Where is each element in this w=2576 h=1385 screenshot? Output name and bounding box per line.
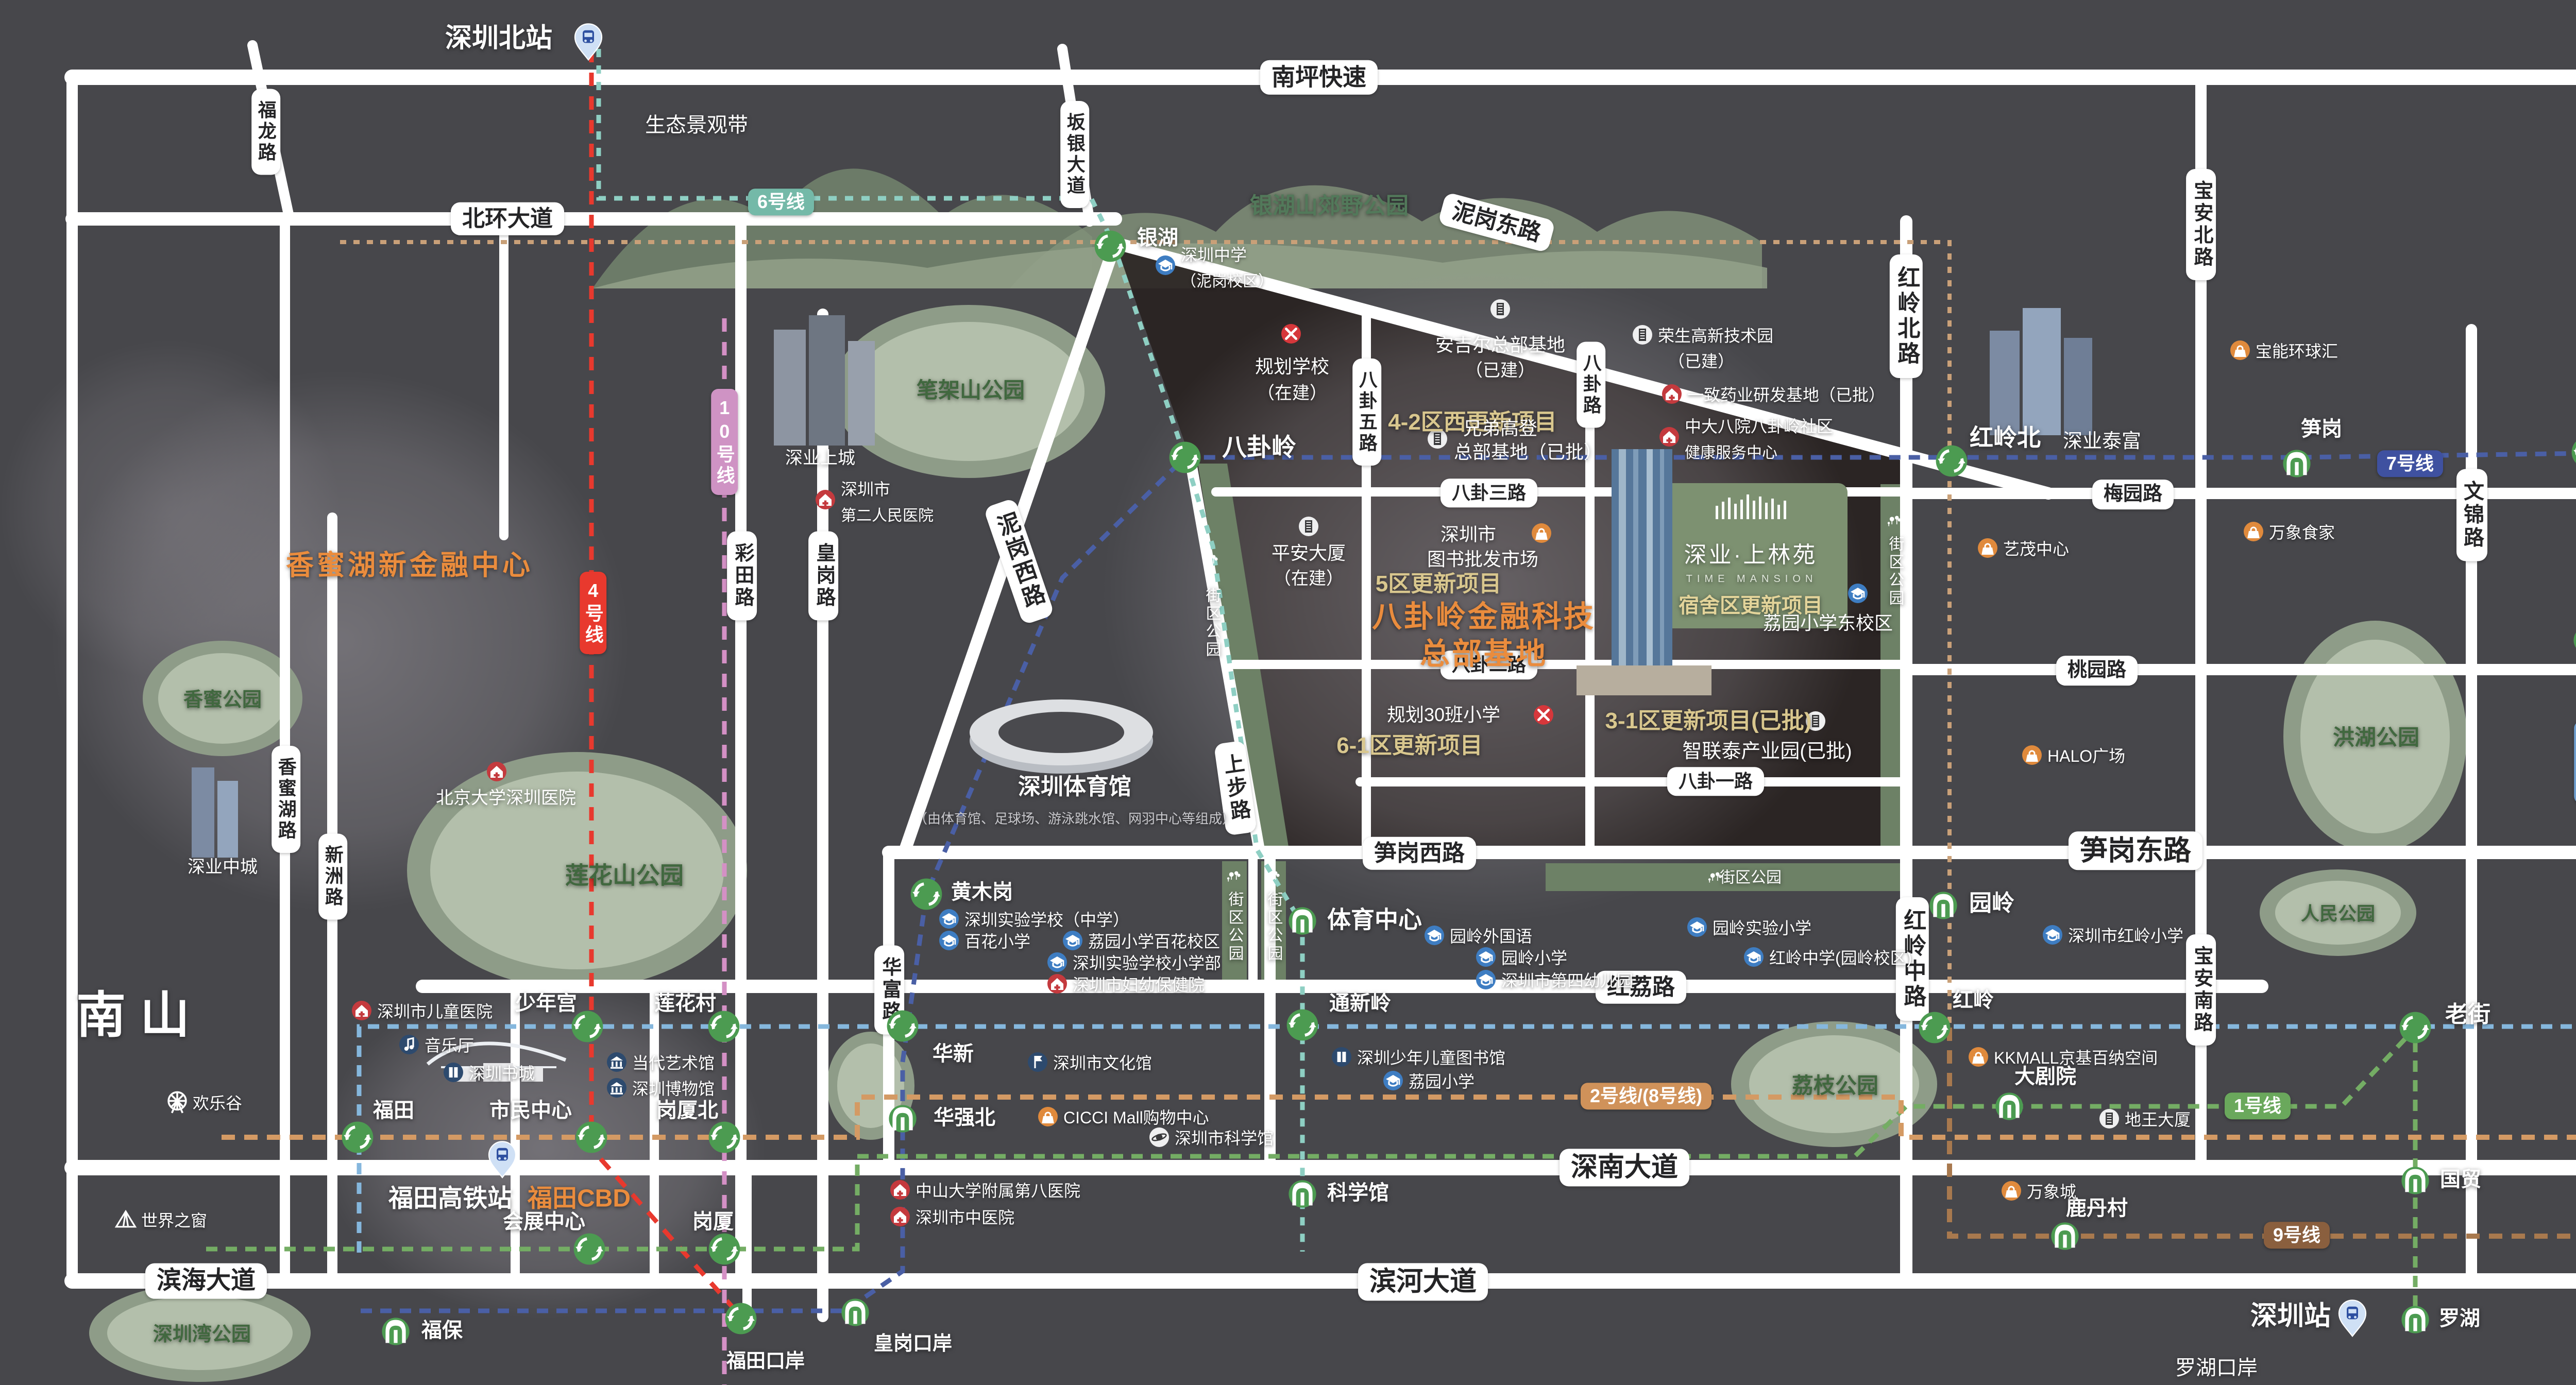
road-label-南坪快速: 南坪快速 <box>1260 60 1378 95</box>
poi-label-万象食家: 万象食家 <box>2269 520 2335 543</box>
poi-label-荣生高新技术园: 荣生高新技术园 <box>1658 323 1773 347</box>
poi-label-KKMALL京基百纳空间: KKMALL京基百纳空间 <box>1994 1045 2158 1069</box>
station-icon-pin <box>483 1141 521 1179</box>
text-深业泰富: 深业泰富 <box>2063 431 2141 453</box>
road-label-皇岗路: 皇岗路 <box>808 532 838 621</box>
text-生态景观带: 生态景观带 <box>645 114 748 136</box>
station-icon-福田口岸 <box>724 1302 757 1335</box>
station-icon-莲花村 <box>707 1010 740 1043</box>
poi-icon-hospital-中大八院八卦岭社区 <box>1659 426 1680 447</box>
map-label-layer: 南坪快速北环大道泥岗东路泥岗西路上步路笋岗西路笋岗东路红荔路深南大道滨河大道滨海… <box>0 0 2576 1385</box>
poi-icon-pyramid-世界之窗 <box>114 1208 138 1232</box>
station-label-罗湖: 罗湖 <box>2439 1307 2480 1330</box>
station-icon-福保 <box>381 1317 410 1346</box>
poi-icon-shop-CICCI Mall购物中心 <box>1038 1106 1058 1127</box>
road-label-泥岗东路: 泥岗东路 <box>1437 192 1555 253</box>
poi-label-第二人民医院: 第二人民医院 <box>841 503 934 525</box>
poi-label-中大八院八卦岭社区: 中大八院八卦岭社区 <box>1685 414 1833 437</box>
text-北京大学深圳医院: 北京大学深圳医院 <box>436 789 576 808</box>
poi-icon-construction <box>1281 323 1301 344</box>
poi-label-世界之窗: 世界之窗 <box>141 1208 207 1232</box>
poi-label-园岭实验小学: 园岭实验小学 <box>1713 915 1811 939</box>
poi-label-深圳市第四幼儿园: 深圳市第四幼儿园 <box>1501 968 1633 991</box>
text-街区公园: 街区公园 <box>1720 869 1782 886</box>
station-label-福保: 福保 <box>421 1319 463 1342</box>
station-icon-少年宫 <box>571 1010 604 1043</box>
station-icon-岗厦北 <box>708 1121 741 1154</box>
station-label-八卦岭: 八卦岭 <box>1222 435 1296 462</box>
station-label-福田口岸: 福田口岸 <box>726 1351 805 1373</box>
station-icon-国贸 <box>2401 1166 2430 1195</box>
station-icon-体育中心 <box>1288 907 1317 935</box>
text-总部基地: 总部基地 <box>1420 638 1548 671</box>
poi-icon-school-园岭外国语 <box>1424 925 1445 946</box>
station-icon-红岭北 <box>1935 444 1968 477</box>
road-label-泥岗西路: 泥岗西路 <box>983 498 1055 625</box>
poi-label-（泥岗校区）: （泥岗校区） <box>1181 268 1274 291</box>
text-街区公园: 街区公园 <box>1265 891 1282 963</box>
text-规划学校: 规划学校 <box>1255 356 1329 377</box>
station-label-红岭北: 红岭北 <box>1970 425 2041 451</box>
text-兄弟高登: 兄弟高登 <box>1463 418 1537 439</box>
road-label-笋岗东路: 笋岗东路 <box>2069 831 2202 870</box>
station-label-市民中心: 市民中心 <box>489 1099 572 1122</box>
road-label-坂银大道: 坂银大道 <box>1060 101 1089 208</box>
road-label-滨海大道: 滨海大道 <box>145 1263 267 1299</box>
poi-label-深圳书城: 深圳书城 <box>469 1061 535 1084</box>
station-icon-华强北 <box>888 1104 917 1133</box>
road-label-梅园路: 梅园路 <box>2092 480 2174 509</box>
poi-icon-school-深圳实验学校（中学） <box>939 909 959 929</box>
text-人民公园: 人民公园 <box>2301 903 2375 924</box>
road-label-彩田路: 彩田路 <box>727 532 757 621</box>
station-icon-八卦岭 <box>1168 441 1201 474</box>
poi-icon-shop-万象食家 <box>2243 521 2264 542</box>
station-label-红岭: 红岭 <box>1953 989 1994 1012</box>
poi-label-一致药业研发基地（已批）: 一致药业研发基地（已批） <box>1687 382 1885 406</box>
road-label-八卦路: 八卦路 <box>1577 342 1605 428</box>
road-label-红岭北路: 红岭北路 <box>1890 254 1923 378</box>
poi-icon-museum-深圳博物馆 <box>606 1078 627 1098</box>
poi-label-荔园小学: 荔园小学 <box>1409 1069 1475 1092</box>
station-icon-深圳北站 <box>569 23 607 61</box>
station-label-银湖: 银湖 <box>1137 227 1178 249</box>
metro-badge-1号线: 1号线 <box>2225 1092 2291 1119</box>
text-深业上城: 深业上城 <box>785 449 855 468</box>
poi-icon-science-深圳市科学馆 <box>1149 1127 1170 1148</box>
station-label-科学馆: 科学馆 <box>1327 1182 1389 1204</box>
text-香蜜公园: 香蜜公园 <box>183 690 262 711</box>
station-label-国贸: 国贸 <box>2440 1168 2481 1191</box>
text-深圳湾公园: 深圳湾公园 <box>153 1324 251 1346</box>
station-icon-深圳站 <box>2333 1299 2371 1338</box>
poi-icon-shop <box>1531 523 1552 543</box>
poi-icon-hospital-中山大学附属第八医院 <box>890 1179 910 1200</box>
text-深业·上林苑: 深业·上林苑 <box>1684 543 1818 568</box>
poi-icon-hospital-深圳市妇幼保健院 <box>1047 973 1067 994</box>
text-八卦岭金融科技: 八卦岭金融科技 <box>1372 601 1596 634</box>
poi-icon-shop-KKMALL京基百纳空间 <box>1968 1047 1989 1067</box>
metro-badge-6号线: 6号线 <box>748 189 814 215</box>
poi-label-深圳实验学校（中学）: 深圳实验学校（中学） <box>964 907 1129 931</box>
text-深圳市: 深圳市 <box>1440 524 1496 545</box>
poi-icon-building <box>1490 299 1511 319</box>
poi-label-地王大厦: 地王大厦 <box>2125 1107 2191 1131</box>
road-label-宝安北路: 宝安北路 <box>2186 169 2216 280</box>
road-label-笋岗西路: 笋岗西路 <box>1363 837 1476 870</box>
poi-icon-shop-宝能环球汇 <box>2230 340 2250 361</box>
text-荔枝公园: 荔枝公园 <box>1792 1074 1878 1098</box>
poi-icon-school-深圳实验学校小学部 <box>1047 952 1067 972</box>
poi-label-深圳实验学校小学部: 深圳实验学校小学部 <box>1073 950 1221 974</box>
station-label-深圳站: 深圳站 <box>2250 1302 2331 1331</box>
road-label-深南大道: 深南大道 <box>1560 1149 1689 1186</box>
poi-label-园岭小学: 园岭小学 <box>1501 945 1567 969</box>
text-街区公园: 街区公园 <box>1887 536 1904 608</box>
text-街区公园: 街区公园 <box>1226 891 1243 963</box>
metro-badge-2号线/(8号线): 2号线/(8号线) <box>1581 1083 1711 1109</box>
poi-icon-shop-万象城 <box>2001 1181 2022 1201</box>
poi-icon-library-深圳少年儿童图书馆 <box>1331 1047 1352 1067</box>
text-莲花山公园: 莲花山公园 <box>565 863 684 889</box>
poi-icon-tree <box>1203 552 1221 569</box>
metro-badge-4号线: 4号线 <box>580 572 606 654</box>
station-icon-笋岗 <box>2282 449 2311 478</box>
station-label-福田: 福田 <box>373 1099 414 1122</box>
map-panel: 南坪快速北环大道泥岗东路泥岗西路上步路笋岗西路笋岗东路红荔路深南大道滨河大道滨海… <box>0 0 2576 1385</box>
road-label-新洲路: 新洲路 <box>318 834 347 920</box>
poi-icon-school-深圳市第四幼儿园 <box>1476 969 1496 990</box>
poi-icon-tree <box>1265 868 1282 885</box>
station-icon-园岭 <box>1929 891 1958 920</box>
poi-label-深圳中学: 深圳中学 <box>1181 242 1247 266</box>
poi-label-中山大学附属第八医院: 中山大学附属第八医院 <box>916 1178 1080 1202</box>
poi-label-宝能环球汇: 宝能环球汇 <box>2256 338 2338 362</box>
road-label-宝安南路: 宝安南路 <box>2186 934 2216 1046</box>
poi-icon-school-荔园小学 <box>1383 1070 1403 1091</box>
station-icon-通新岭 <box>1286 1008 1319 1041</box>
text-深圳体育馆: 深圳体育馆 <box>1018 775 1131 799</box>
text-深业中城: 深业中城 <box>188 858 258 877</box>
road-label-滨河大道: 滨河大道 <box>1358 1263 1488 1301</box>
text-规划30班小学: 规划30班小学 <box>1387 705 1500 725</box>
poi-icon-school-深圳市红岭小学 <box>2042 925 2063 945</box>
station-icon-罗湖 <box>2401 1305 2430 1334</box>
poi-label-欢乐谷: 欢乐谷 <box>193 1090 242 1114</box>
poi-icon-construction <box>1533 705 1554 725</box>
poi-label-HALO广场: HALO广场 <box>2047 743 2125 767</box>
station-label-体育中心: 体育中心 <box>1327 907 1422 933</box>
text-洪湖公园: 洪湖公园 <box>2333 726 2419 749</box>
text-5区更新项目: 5区更新项目 <box>1376 572 1501 596</box>
station-icon-会展中心 <box>573 1233 606 1266</box>
text-6-1区更新项目: 6-1区更新项目 <box>1336 733 1483 758</box>
station-label-笋岗: 笋岗 <box>2301 418 2342 440</box>
poi-icon-school-荔园小学百花校区 <box>1062 930 1083 951</box>
metro-badge-3号线: 3号线 <box>2574 721 2576 803</box>
poi-icon-library-深圳书城 <box>443 1062 464 1083</box>
poi-label-深圳市妇幼保健院: 深圳市妇幼保健院 <box>1073 972 1205 996</box>
station-icon-岗厦 <box>708 1233 741 1266</box>
poi-icon-building-地王大厦 <box>2099 1108 2120 1129</box>
metro-badge-10号线: 10号线 <box>711 389 738 495</box>
text-笔架山公园: 笔架山公园 <box>917 379 1025 402</box>
poi-label-荔园小学百花校区: 荔园小学百花校区 <box>1088 929 1220 952</box>
road-label-福龙路: 福龙路 <box>251 89 280 175</box>
text-智联泰产业园(已批): 智联泰产业园(已批) <box>1682 741 1852 763</box>
station-label-华新: 华新 <box>933 1042 974 1065</box>
text-罗湖口岸: 罗湖口岸 <box>2175 1357 2258 1379</box>
road-label-八卦五路: 八卦五路 <box>1352 358 1381 466</box>
poi-label-深圳市红岭小学: 深圳市红岭小学 <box>2068 923 2183 947</box>
station-icon-鹿丹村 <box>2050 1222 2079 1251</box>
station-icon-福田 <box>341 1121 374 1154</box>
road-label-北环大道: 北环大道 <box>451 202 564 235</box>
poi-label-红岭中学(园岭校区): 红岭中学(园岭校区) <box>1769 945 1912 969</box>
poi-icon-building-荣生高新技术园 <box>1632 324 1653 345</box>
text-街区公园: 街区公园 <box>1204 587 1221 659</box>
poi-icon-hospital-一致药业研发基地（已批） <box>1662 384 1682 404</box>
poi-label-百花小学: 百花小学 <box>964 929 1030 952</box>
text-福田高铁站: 福田高铁站 <box>388 1186 512 1213</box>
poi-icon-tree <box>1886 512 1904 530</box>
poi-icon-music-音乐厅 <box>399 1034 419 1055</box>
poi-icon-school-园岭实验小学 <box>1687 917 1707 937</box>
text-（由体育馆、足球场、游泳跳水: （由体育馆、足球场、游泳跳水馆、网羽中心等组成） <box>914 812 1235 827</box>
road-label-八卦三路: 八卦三路 <box>1440 478 1537 507</box>
station-icon-市民中心 <box>575 1121 608 1154</box>
poi-label-深圳市儿童医院: 深圳市儿童医院 <box>377 999 493 1022</box>
poi-icon-flag-深圳市文化馆 <box>1027 1052 1048 1072</box>
station-label-岗厦: 岗厦 <box>692 1210 734 1233</box>
poi-label-深圳市科学馆: 深圳市科学馆 <box>1175 1125 1274 1149</box>
poi-icon-school-深圳中学 <box>1155 255 1176 276</box>
poi-label-万象城: 万象城 <box>2027 1179 2076 1203</box>
poi-label-深圳市文化馆: 深圳市文化馆 <box>1053 1050 1152 1074</box>
poi-label-艺茂中心: 艺茂中心 <box>2003 536 2069 560</box>
poi-label-深圳市中医院: 深圳市中医院 <box>916 1205 1014 1228</box>
poi-icon-hospital <box>486 761 507 782</box>
poi-icon-hospital-深圳市儿童医院 <box>351 1000 372 1021</box>
station-label-老街: 老街 <box>2445 1002 2490 1027</box>
station-icon-翠竹 <box>2573 626 2576 655</box>
poi-label-当代艺术馆: 当代艺术馆 <box>632 1050 715 1074</box>
text-图书批发市场: 图书批发市场 <box>1427 549 1538 570</box>
station-label-莲花村: 莲花村 <box>654 992 716 1015</box>
poi-label-深圳市: 深圳市 <box>841 476 890 500</box>
poi-label-音乐厅: 音乐厅 <box>425 1033 474 1056</box>
station-icon-皇岗口岸 <box>841 1298 870 1327</box>
poster-root: 南坪快速北环大道泥岗东路泥岗西路上步路笋岗西路笋岗东路红荔路深南大道滨河大道滨海… <box>0 0 2576 1385</box>
text-香蜜湖新金融中心: 香蜜湖新金融中心 <box>286 550 533 580</box>
station-icon-华新 <box>886 1010 919 1042</box>
metro-badge-9号线: 9号线 <box>2264 1222 2330 1249</box>
station-icon-银湖 <box>1094 230 1127 263</box>
poi-label-深圳少年儿童图书馆: 深圳少年儿童图书馆 <box>1357 1045 1505 1069</box>
station-label-皇岗口岸: 皇岗口岸 <box>874 1333 952 1355</box>
poi-label-园岭外国语: 园岭外国语 <box>1450 924 1532 947</box>
text-福田CBD: 福田CBD <box>528 1186 631 1213</box>
station-label-岗厦北: 岗厦北 <box>656 1099 718 1122</box>
station-icon-大剧院 <box>1995 1092 2024 1121</box>
poi-icon-museum-当代艺术馆 <box>606 1052 627 1072</box>
station-label-会展中心: 会展中心 <box>503 1210 585 1233</box>
text-（在建）: （在建） <box>1274 569 1344 588</box>
poi-icon-school <box>1848 583 1868 604</box>
station-icon-科学馆 <box>1288 1179 1317 1208</box>
text-银湖山郊野公园: 银湖山郊野公园 <box>1250 194 1409 218</box>
text-3-1区更新项目(已批): 3-1区更新项目(已批) <box>1605 709 1812 733</box>
poi-icon-tree <box>1226 868 1243 885</box>
text-南山: 南山 <box>76 988 204 1043</box>
text-（已建）: （已建） <box>1668 352 1734 370</box>
poi-icon-hospital-深圳市中医院 <box>890 1206 910 1227</box>
poi-icon-shop-艺茂中心 <box>1977 538 1998 558</box>
text-总部基地（已批）: 总部基地（已批） <box>1454 442 1602 463</box>
station-label-华强北: 华强北 <box>934 1106 995 1129</box>
station-label-深圳北站: 深圳北站 <box>445 24 552 53</box>
station-icon-田贝 <box>2571 436 2576 469</box>
poi-icon-school-百花小学 <box>939 930 959 951</box>
poi-icon-school-园岭小学 <box>1476 947 1496 967</box>
poi-label-深圳博物馆: 深圳博物馆 <box>632 1076 715 1100</box>
station-label-少年宫: 少年宫 <box>515 992 577 1015</box>
text-TIME MANSION: TIME MANSION <box>1686 573 1818 585</box>
station-icon-老街 <box>2399 1011 2432 1044</box>
road-label-香蜜湖路: 香蜜湖路 <box>272 746 300 853</box>
station-icon-红岭 <box>1918 1011 1951 1044</box>
text-平安大厦: 平安大厦 <box>1272 543 1346 563</box>
text-（已建）: （已建） <box>1465 361 1535 380</box>
text-（在建）: （在建） <box>1257 384 1327 403</box>
poi-icon-hospital-深圳市 <box>815 489 836 510</box>
road-label-八卦一路: 八卦一路 <box>1667 767 1764 796</box>
station-label-黄木岗: 黄木岗 <box>951 881 1013 903</box>
road-label-文锦路: 文锦路 <box>2456 469 2487 561</box>
road-label-桃园路: 桃园路 <box>2056 656 2138 686</box>
poi-icon-building <box>1298 516 1319 537</box>
poi-icon-school-红岭中学(园岭校区) <box>1743 947 1764 967</box>
poi-label-健康服务中心: 健康服务中心 <box>1685 440 1777 463</box>
station-label-通新岭: 通新岭 <box>1329 992 1391 1015</box>
poi-icon-ferris-欢乐谷 <box>164 1089 191 1116</box>
text-安吉尔总部基地: 安吉尔总部基地 <box>1435 335 1565 355</box>
poi-icon-shop-HALO广场 <box>2022 745 2042 765</box>
station-label-园岭: 园岭 <box>1969 891 2014 916</box>
text-荔园小学东校区: 荔园小学东校区 <box>1763 613 1893 634</box>
metro-badge-7号线: 7号线 <box>2377 450 2443 477</box>
station-icon-黄木岗 <box>910 878 943 911</box>
